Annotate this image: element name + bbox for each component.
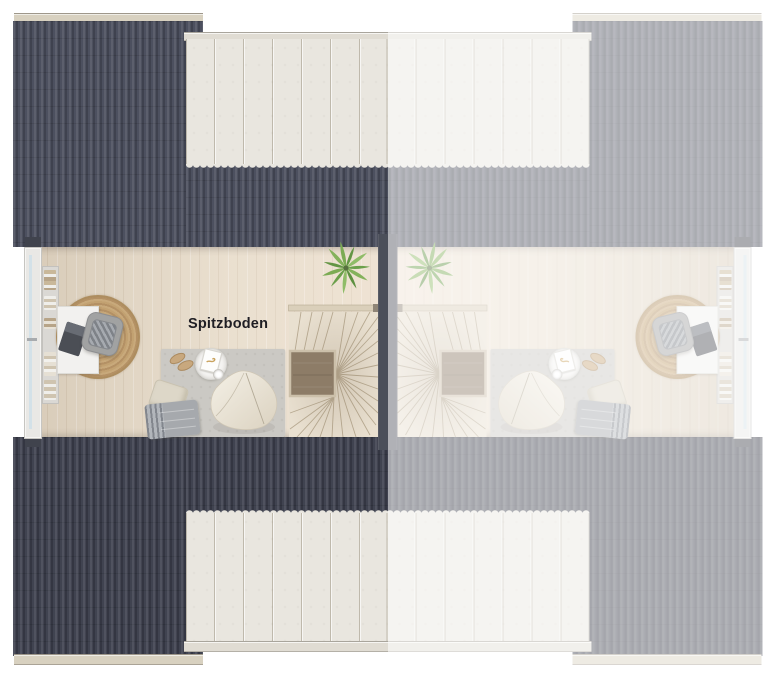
beanbag-chair [490, 360, 575, 440]
roof-bottom-left-panel [13, 437, 203, 656]
blanket-fold [159, 409, 194, 414]
unit-right-content [388, 0, 775, 681]
dormer-top-slats [186, 39, 389, 164]
unit-right-mirror-container [388, 0, 775, 681]
roof-bottom-above-dormer [186, 437, 388, 513]
book-stack [44, 318, 56, 329]
room-label: Spitzboden [188, 316, 268, 332]
book-stack [719, 296, 731, 310]
winder-staircase [395, 303, 487, 437]
dormer-top-slats [387, 39, 590, 164]
window-glass [743, 255, 746, 429]
roof-eaves-trim-bottom [572, 654, 761, 665]
roof-bottom-above-dormer [388, 437, 590, 513]
fern-plant [399, 238, 459, 298]
floorplan-canvas: Spitzboden [0, 0, 775, 681]
roof-top-under-dormer [186, 163, 388, 247]
fringed-blanket [144, 399, 200, 439]
stair-handrail [399, 305, 487, 311]
chair-cushion [87, 318, 118, 350]
dormer-bottom-slats [387, 513, 590, 641]
unit-left: Spitzboden [0, 0, 388, 681]
fern-plant [316, 238, 376, 298]
roof-top-left-panel [572, 21, 762, 247]
book-stack [719, 270, 731, 290]
stair-handrail [289, 305, 377, 311]
dormer-bottom-edge-trim [388, 641, 592, 652]
book-stack [719, 318, 731, 329]
book-stack [44, 296, 56, 310]
blanket-fold [579, 426, 614, 431]
roof-bottom-left-panel [572, 437, 762, 656]
fringed-blanket [574, 399, 630, 439]
party-wall [388, 234, 398, 450]
party-wall [378, 234, 388, 450]
dormer-top-scalloped-edge [186, 164, 388, 171]
book-stack [719, 380, 731, 400]
book-stack [719, 352, 731, 376]
chair-cushion [657, 318, 688, 350]
book-stack [44, 270, 56, 290]
beanbag-chair [200, 360, 285, 440]
window-handle [27, 338, 37, 341]
dormer-bottom-slats [186, 513, 389, 641]
roof-top-left-panel [13, 21, 203, 247]
gable-window [24, 247, 42, 439]
book-stack [44, 352, 56, 376]
book-stack [44, 380, 56, 400]
blanket-fold [161, 426, 196, 431]
blanket-fold [160, 418, 195, 423]
winder-staircase [288, 303, 380, 437]
window-glass [29, 255, 32, 429]
blanket-fold [581, 409, 616, 414]
dormer-top-scalloped-edge [388, 164, 590, 171]
unit-right [388, 0, 775, 681]
roof-top-under-dormer [388, 163, 590, 247]
blanket-fold [580, 418, 615, 423]
gable-window [733, 247, 751, 439]
window-handle [738, 338, 748, 341]
roof-eaves-trim-bottom [14, 654, 203, 665]
dormer-bottom-edge-trim [184, 641, 388, 652]
